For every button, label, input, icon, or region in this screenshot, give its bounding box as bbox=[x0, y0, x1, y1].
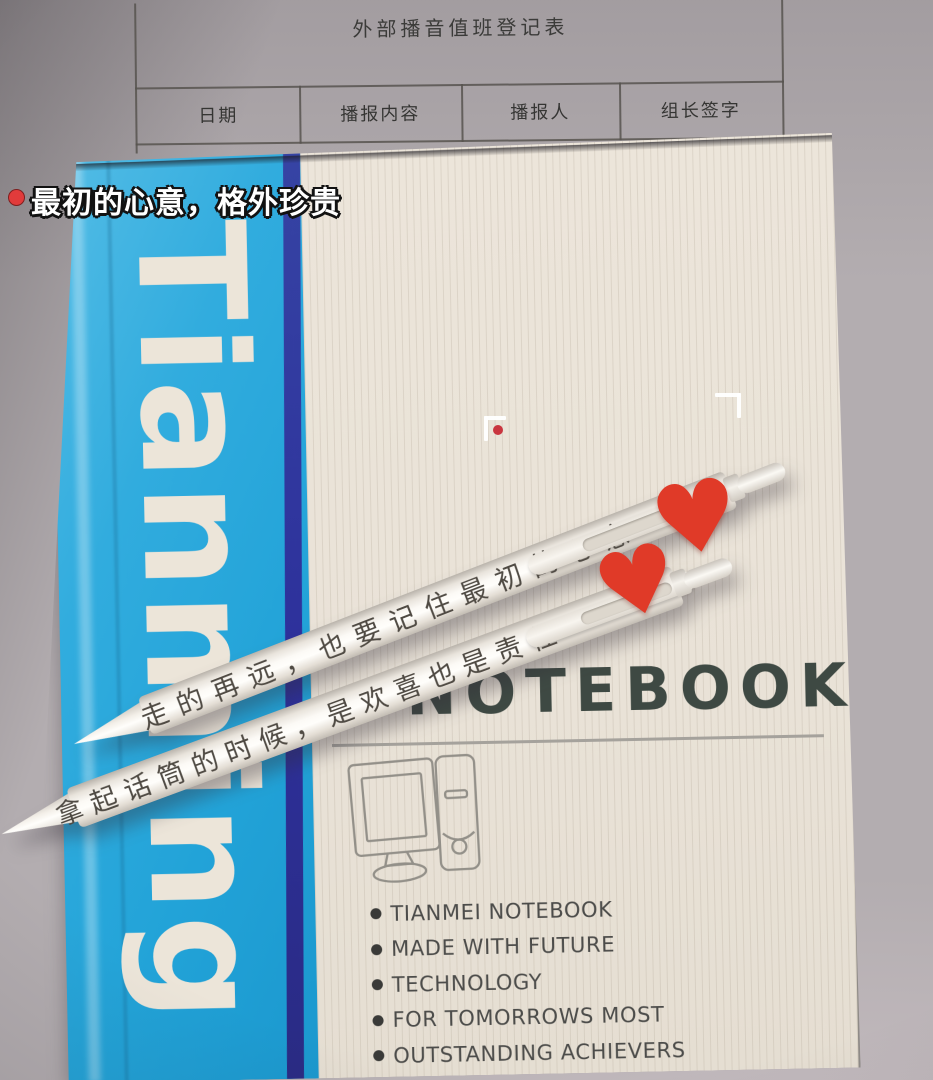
column-header-content: 播报内容 bbox=[299, 94, 461, 136]
photo-scene: 外部播音值班登记表 日期 播报内容 播报人 组长签字 Tianming NOTE… bbox=[0, 0, 933, 1080]
focus-dot-icon bbox=[493, 425, 503, 435]
bullet-icon bbox=[371, 944, 382, 955]
caption-text: 最初的心意，格外珍贵 bbox=[31, 178, 341, 222]
bullet-icon bbox=[372, 1015, 383, 1026]
bullet-icon bbox=[370, 908, 381, 919]
feature-label: TECHNOLOGY bbox=[392, 970, 543, 997]
bullet-icon bbox=[372, 979, 383, 990]
focus-corner-icon bbox=[484, 416, 510, 444]
feature-label: MADE WITH FUTURE bbox=[391, 933, 615, 961]
form-title: 外部播音值班登记表 bbox=[136, 9, 784, 45]
spine-highlight bbox=[70, 148, 101, 1080]
bullet-icon bbox=[373, 1050, 384, 1061]
column-header-date: 日期 bbox=[137, 96, 299, 138]
feature-list: TIANMEI NOTEBOOK MADE WITH FUTURE TECHNO… bbox=[370, 890, 686, 1074]
column-header-signoff: 组长签字 bbox=[619, 91, 782, 133]
feature-item: OUTSTANDING ACHIEVERS bbox=[373, 1032, 686, 1074]
feature-label: TIANMEI NOTEBOOK bbox=[390, 897, 613, 925]
computer-icon bbox=[314, 747, 517, 891]
form-header-top-line bbox=[135, 81, 784, 90]
focus-corner-icon bbox=[713, 393, 741, 421]
photo-caption: 最初的心意，格外珍贵 bbox=[8, 178, 341, 222]
feature-label: FOR TOMORROWS MOST bbox=[392, 1003, 664, 1032]
pen-plunger bbox=[735, 460, 788, 496]
feature-label: OUTSTANDING ACHIEVERS bbox=[393, 1038, 686, 1068]
caption-bullet-icon bbox=[8, 189, 25, 206]
column-header-speaker: 播报人 bbox=[461, 92, 619, 134]
